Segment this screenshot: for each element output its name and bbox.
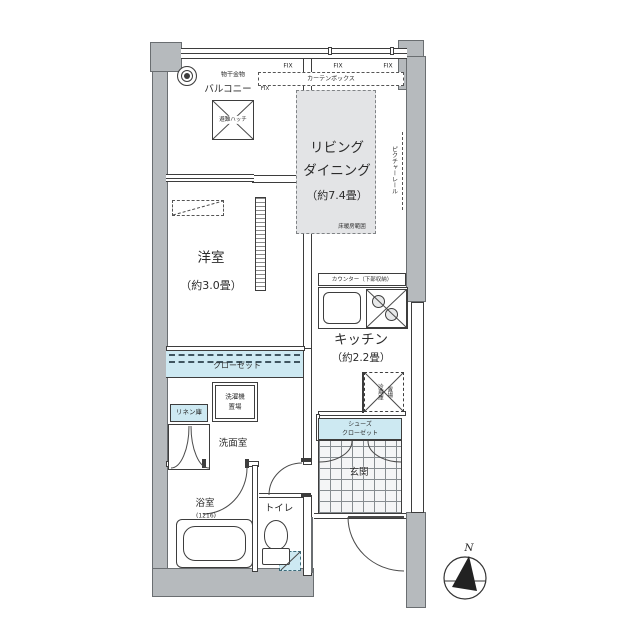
toilet-bowl <box>264 520 288 550</box>
compass <box>444 556 486 599</box>
bathroom-size-label: (1216) <box>196 512 216 521</box>
shoes-closet-label: シューズ クローゼット <box>342 420 378 438</box>
living-dining-size-label: （約7.4畳） <box>306 188 368 205</box>
picture-rail <box>402 132 403 210</box>
closet-pipe <box>169 354 300 356</box>
wall-divider-washroom-kitchen <box>303 348 312 465</box>
floor-heating-label: 床暖房範囲 <box>338 223 366 231</box>
compass-circle <box>444 557 486 599</box>
kitchen-size-label: （約2.2畳） <box>332 351 391 367</box>
bathtub-inner <box>183 526 246 561</box>
living-dining-label: リビング ダイニング <box>303 137 371 183</box>
railing-post <box>390 47 394 55</box>
western-room-window <box>166 174 254 182</box>
compass-needle <box>452 556 477 591</box>
faucet-icon-center <box>184 73 190 79</box>
entrance-label: 玄関 <box>349 466 368 480</box>
washroom-label: 洗面室 <box>219 437 248 451</box>
washer-space-label: 洗濯機 置場 <box>225 392 245 412</box>
bath-door-frame <box>245 459 249 468</box>
western-room-label: 洋室 <box>198 248 225 268</box>
dropped-ceiling <box>172 200 224 216</box>
toilet-label: トイレ <box>265 502 294 516</box>
closet-label: クローゼット <box>213 360 261 372</box>
kitchen-sink <box>323 292 361 324</box>
stove-burner <box>385 308 398 321</box>
washroom-door-frame <box>301 458 311 462</box>
entrance-door-arc <box>348 517 404 571</box>
counter-label: カウンター（下部収納） <box>332 276 393 284</box>
sliding-door <box>255 197 266 291</box>
escape-hatch-label: 避難ハッチ <box>218 116 248 124</box>
picture-rail-label: ピクチャーレール <box>390 146 399 194</box>
wall-bottom <box>152 568 314 597</box>
wall-right-lower <box>406 512 426 608</box>
stove-burner <box>372 295 385 308</box>
western-room-size-label: （約3.0畳） <box>180 278 242 295</box>
wall-right-middle <box>411 302 424 513</box>
fix-label-3: FIX <box>383 62 392 71</box>
wall-left <box>152 44 168 597</box>
washroom-door-frame <box>301 493 311 497</box>
wall-right-upper <box>406 56 426 302</box>
railing-post <box>328 47 332 55</box>
toilet-door <box>259 493 303 498</box>
fix-label-side: FIX <box>261 85 270 93</box>
fix-label-1: FIX <box>283 62 292 71</box>
fridge-space-label: 冷蔵庫 置場 <box>375 384 394 401</box>
linen-closet-label: リネン庫 <box>176 408 202 418</box>
compass-north-label: N <box>464 541 473 557</box>
laundry-fixture-label: 物干金物 <box>221 71 245 80</box>
kitchen-label: キッチン <box>334 330 388 350</box>
porch-side-line <box>311 517 313 573</box>
toilet-tank <box>262 548 290 565</box>
wall-top-left-column <box>150 42 182 72</box>
curtain-box-label: カーテンボックス <box>307 75 355 84</box>
floor-plan: 物干金物 バルコニー 避難ハッチ FIX FIX FIX FIX カーテンボック… <box>0 0 640 640</box>
bath-door-frame <box>202 459 206 468</box>
balcony-railing <box>181 48 407 59</box>
bathroom-label: 浴室 <box>195 497 214 511</box>
washroom-door-arc <box>269 463 302 495</box>
fix-label-2: FIX <box>333 62 342 71</box>
balcony-label: バルコニー <box>204 83 251 97</box>
